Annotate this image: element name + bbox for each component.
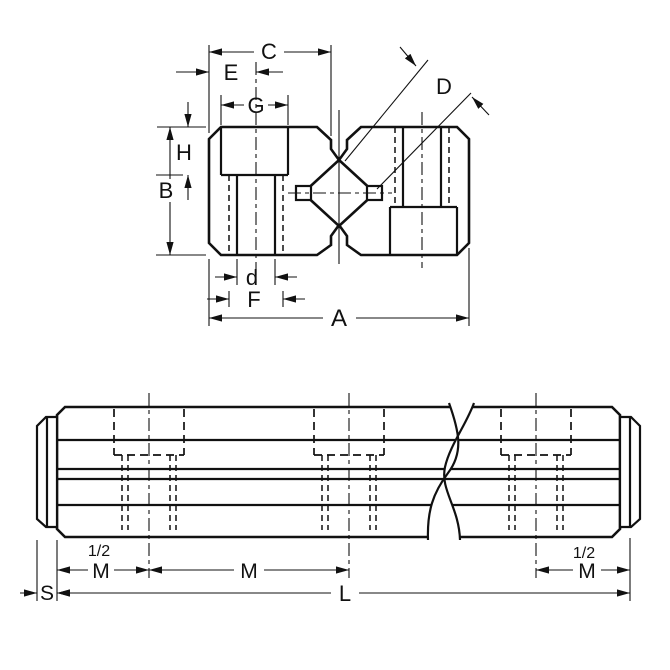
right-end-cap [620,417,640,527]
dim-half-m-right: 1/2 M [536,545,630,583]
dim-label-A: A [331,305,347,332]
left-end-cap [37,417,57,527]
dim-H: H [176,102,192,200]
drawing-canvas: D C E [0,0,670,670]
dim-label-B: B [159,178,174,203]
dim-L: L [57,581,630,606]
dim-label-half-left: 1/2 [88,543,110,560]
dim-label-F: F [247,287,260,312]
dim-label-S: S [40,582,54,605]
dim-label-G: G [247,93,264,118]
dim-F: F [207,287,305,312]
engineering-drawing: D C E [0,0,670,670]
dim-label-D: D [436,74,452,99]
dim-label-E: E [224,60,239,85]
dim-label-m-right: M [578,560,596,583]
dim-label-L: L [339,581,351,606]
side-view-rail: 1/2 M M 1/2 M S L [20,393,640,606]
dim-label-C: C [261,39,277,64]
dim-m-mid: M [149,560,349,583]
dim-half-m-left: 1/2 M [57,543,149,583]
dim-label-m-mid: M [240,560,258,583]
dim-label-H: H [176,140,192,165]
top-view-cross-section: D C E [156,39,489,332]
dim-G: G [221,93,288,118]
dim-B: B [159,127,174,255]
dim-label-m-left: M [92,560,110,583]
